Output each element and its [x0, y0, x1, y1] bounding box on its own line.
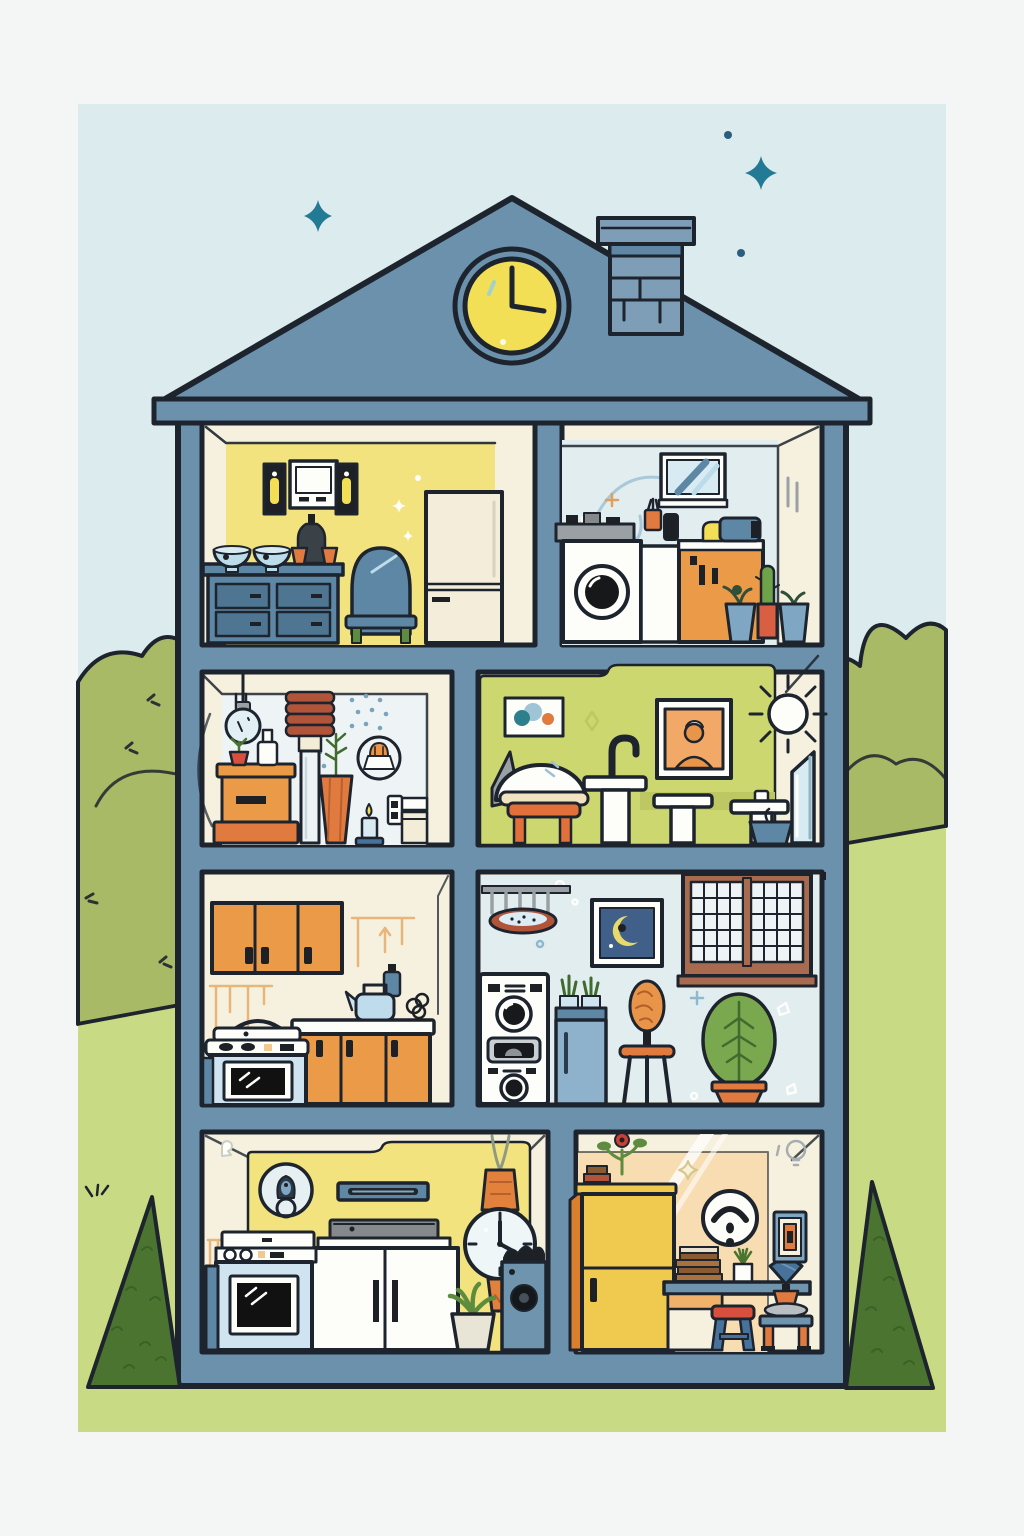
foreground-lawn [78, 1386, 946, 1432]
doorbell-roundel [260, 1164, 312, 1217]
room-family-laundry [478, 872, 826, 1105]
stove-oven [203, 1021, 308, 1105]
medicine-cabinet [290, 461, 337, 508]
striped-mirror [659, 454, 727, 507]
portrait-frame [657, 700, 731, 778]
soundbar [330, 1220, 438, 1238]
house-cross-section-illustration [0, 0, 1024, 1536]
room-attic-dining [202, 423, 535, 645]
desk-plant [734, 1249, 752, 1282]
room-attic-laundry [556, 423, 822, 645]
side-cabinet [641, 499, 679, 642]
candle-sconce [336, 464, 357, 514]
washing-machine [563, 541, 641, 642]
candle-sconce [264, 464, 285, 514]
wall-console-shelf [338, 1183, 428, 1200]
smiley-roundel [703, 1191, 757, 1246]
grid-window [678, 872, 826, 986]
blue-dresser [203, 564, 343, 643]
stove-oven [206, 1232, 316, 1350]
sky-dot [724, 131, 732, 139]
black-jar [664, 514, 678, 540]
sky-dot [737, 249, 745, 257]
upper-cabinets [212, 903, 342, 973]
sewing-machine [703, 518, 760, 541]
sparkle [222, 1141, 232, 1156]
speaker [502, 1246, 546, 1350]
storage-chest [214, 764, 298, 843]
room-home-office [570, 1132, 822, 1352]
page [0, 0, 1024, 1536]
house [154, 198, 870, 1386]
dot-artwork [505, 698, 563, 736]
sun-burst [750, 676, 826, 752]
room-bathroom [478, 656, 826, 845]
book-stack [676, 1247, 722, 1281]
media-cabinet [312, 1238, 458, 1350]
roof-clock [455, 249, 569, 363]
room-kitchen [202, 872, 452, 1105]
moon-artwork [592, 900, 662, 966]
potted-tree [703, 994, 775, 1104]
blue-chair [346, 548, 416, 643]
refrigerator [426, 492, 502, 643]
room-media [202, 1132, 548, 1352]
yellow-wardrobe [570, 1184, 676, 1350]
room-utility [198, 672, 452, 845]
chimney [598, 218, 694, 334]
lamp-roundel [358, 737, 400, 779]
stacked-washer-dryer [480, 974, 548, 1104]
counter-cabinets [292, 1020, 434, 1104]
wall-frame [774, 1212, 806, 1262]
